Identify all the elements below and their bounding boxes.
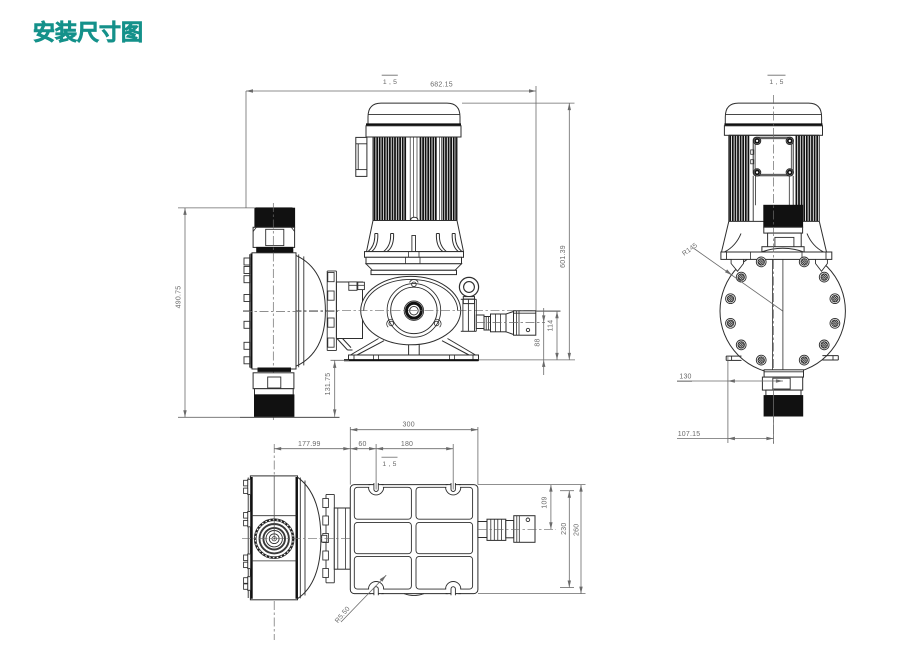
svg-text:1 , 5: 1 , 5 [769, 79, 783, 86]
svg-text:R5.50: R5.50 [334, 605, 352, 624]
svg-text:177.99: 177.99 [298, 441, 321, 448]
svg-text:300: 300 [403, 422, 415, 429]
svg-text:60: 60 [358, 441, 366, 448]
svg-text:1 , 5: 1 , 5 [383, 79, 397, 86]
svg-text:131.75: 131.75 [325, 373, 332, 396]
svg-text:107.15: 107.15 [678, 431, 701, 438]
svg-text:1 , 5: 1 , 5 [382, 461, 396, 468]
svg-text:109: 109 [542, 496, 549, 508]
svg-text:180: 180 [401, 441, 413, 448]
svg-text:490.75: 490.75 [176, 286, 183, 309]
svg-text:601.39: 601.39 [560, 245, 567, 268]
svg-text:230: 230 [561, 523, 568, 535]
svg-text:130: 130 [679, 374, 691, 381]
svg-text:260: 260 [573, 524, 580, 536]
svg-text:682.15: 682.15 [430, 82, 453, 89]
svg-text:88: 88 [534, 338, 541, 346]
svg-text:114: 114 [548, 320, 555, 332]
